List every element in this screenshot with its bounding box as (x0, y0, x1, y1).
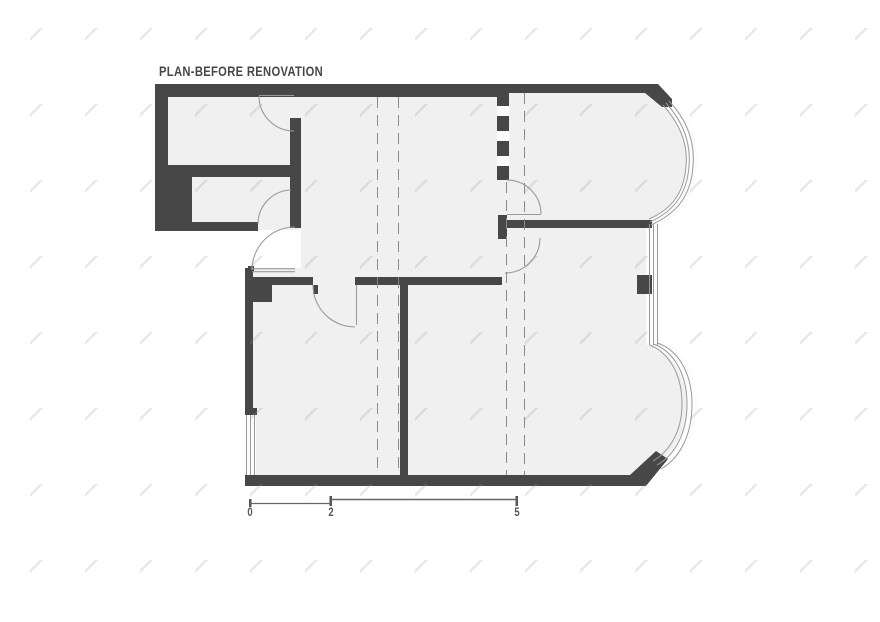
floor-lower-rooms (245, 268, 652, 478)
door-pier (498, 215, 507, 239)
plan-title: PLAN-BEFORE RENOVATION (159, 63, 323, 79)
striped-wall-gap (497, 106, 509, 116)
block-bottom-wall (155, 222, 258, 231)
scale-label-5: 5 (511, 507, 522, 519)
scale-tick-5 (516, 496, 519, 506)
hinge-tick-top-door (290, 92, 297, 97)
scale-tick-2 (330, 496, 333, 506)
scale-label-2: 2 (325, 507, 336, 519)
floor-top-strip (155, 84, 652, 230)
scale-bar (249, 496, 518, 507)
room-divider-wall (155, 165, 297, 177)
top-wall-left (155, 84, 508, 97)
bottom-wall (245, 475, 645, 486)
top-wall-right (508, 84, 648, 93)
floor-plan-drawing (0, 0, 880, 622)
door-swing-arc (252, 227, 295, 270)
scale-label-0: 0 (244, 507, 255, 519)
hall-stub-wall (290, 118, 301, 228)
striped-wall-gap (497, 131, 509, 141)
middle-vertical-wall (400, 285, 408, 475)
striped-wall-gap (497, 156, 509, 166)
right-rooms-divider-wall (498, 220, 652, 228)
left-window-cap (245, 408, 257, 415)
striped-partition-wall (497, 84, 509, 180)
floor-plan-page: PLAN-BEFORE RENOVATION 0 2 5 (0, 0, 880, 622)
lower-left-outer-wall (245, 268, 253, 415)
entry-hall-door (252, 227, 295, 272)
lower-room-top-wall-left (252, 277, 313, 285)
